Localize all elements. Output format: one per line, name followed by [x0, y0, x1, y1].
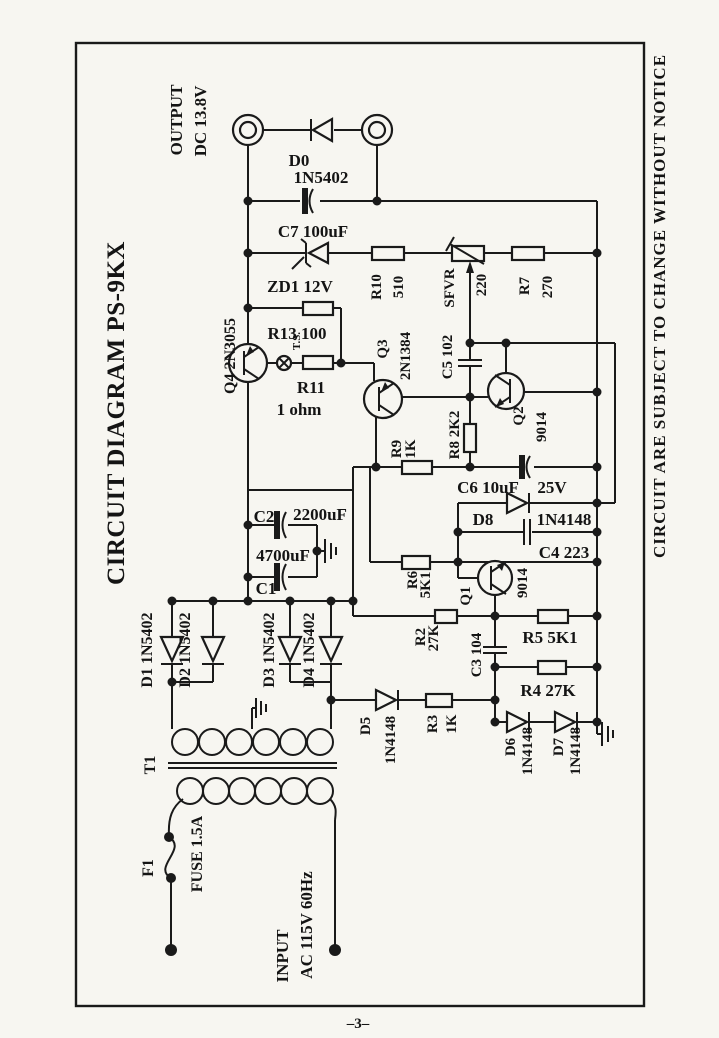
bridge-diode-d3: [279, 637, 301, 664]
label-q2-ref: Q2: [511, 406, 527, 425]
capacitor-c3: [483, 647, 507, 653]
trimmer-svr: [446, 237, 484, 273]
ground-filter: [325, 539, 336, 563]
capacitor-c4: [524, 519, 530, 545]
capacitor-c7: [302, 188, 313, 214]
resistor-r10: [372, 247, 404, 260]
label-r6-val: 5K1: [418, 572, 434, 599]
label-r10-ref: R10: [369, 274, 385, 300]
label-d5-val: 1N4148: [383, 716, 399, 764]
diode-d0: [311, 119, 332, 141]
label-c2-val: 2200uF: [293, 505, 347, 524]
resistor-r2: [435, 610, 457, 623]
transistor-q2: [488, 373, 524, 409]
label-r9-val: 1K: [403, 439, 419, 459]
label-c1-ref: C1: [256, 579, 277, 598]
label-c7: C7 100uF: [278, 222, 348, 241]
resistor-r4: [538, 661, 566, 674]
output-label-line2: DC 13.8V: [191, 85, 210, 157]
capacitor-c2: [274, 511, 286, 539]
resistor-r11: [303, 356, 333, 369]
input-terminal-left: [165, 944, 177, 956]
label-q1-val: 9014: [515, 568, 531, 599]
notice-text: CIRCUIT ARE SUBJECT TO CHANGE WITHOUT NO…: [650, 54, 669, 558]
transistor-q3: [364, 380, 402, 418]
label-c6-ref: C6 10uF: [457, 478, 519, 497]
label-d5-ref: D5: [358, 717, 374, 735]
label-zd1: ZD1 12V: [267, 277, 333, 296]
resistor-r9: [402, 461, 432, 474]
schematic-page: CIRCUIT DIAGRAM PS-9KX CIRCUIT ARE SUBJE…: [0, 0, 719, 1038]
resistor-r7: [512, 247, 544, 260]
label-f1: F1: [140, 859, 157, 877]
label-d0-val: 1N5402: [294, 168, 349, 187]
label-c5: C5 102: [440, 335, 456, 380]
output-terminal-positive: [233, 115, 263, 145]
label-d8-val: 1N4148: [537, 510, 592, 529]
resistor-r13: [303, 302, 333, 315]
label-ts: T.S.: [291, 332, 303, 350]
capacitor-c6: [519, 455, 530, 479]
label-svr-val: 220: [474, 274, 490, 297]
output-terminal-negative: [362, 115, 392, 145]
page-number: –3–: [346, 1016, 370, 1032]
label-q1-ref: Q1: [458, 586, 474, 605]
label-r5: R5 5K1: [522, 628, 577, 647]
transistor-q1: [478, 561, 512, 595]
label-r11-val: 1 ohm: [277, 400, 322, 419]
label-d3: D3 1N5402: [261, 612, 278, 687]
resistor-r5: [538, 610, 568, 623]
input-label-line2: AC 115V 60Hz: [297, 871, 316, 979]
label-q3-val: 2N1384: [398, 331, 414, 380]
label-c4: C4 223: [539, 543, 590, 562]
label-r11-ref: R11: [297, 378, 325, 397]
ground-center-tap: [256, 698, 266, 718]
label-q4: Q4 2N3055: [222, 318, 239, 394]
label-d4: D4 1N5402: [301, 612, 318, 687]
label-t1: T1: [142, 756, 159, 775]
label-d6-ref: D6: [503, 737, 519, 756]
label-q3-ref: Q3: [375, 339, 391, 358]
resistor-r6: [402, 556, 430, 569]
label-r3-val: 1K: [444, 714, 460, 734]
input-terminal-right: [329, 944, 341, 956]
label-c6-val: 25V: [537, 478, 567, 497]
thermal-switch-ts: [277, 356, 291, 370]
label-r10-val: 510: [391, 276, 407, 299]
label-d6-val: 1N4148: [520, 727, 536, 775]
bridge-diode-d4: [320, 637, 342, 664]
label-d7-val: 1N4148: [568, 727, 584, 775]
resistor-r8: [464, 424, 476, 452]
label-r4: R4 27K: [520, 681, 576, 700]
label-q2-val: 9014: [534, 412, 550, 443]
label-c1-val: 4700uF: [256, 546, 310, 565]
label-r3-ref: R3: [425, 715, 441, 733]
capacitor-c5: [458, 360, 482, 366]
label-r7-ref: R7: [517, 276, 533, 295]
transformer-t1: [172, 729, 333, 804]
ground-bottom: [602, 722, 613, 746]
bridge-diode-d2: [202, 637, 224, 664]
label-r8: R8 2K2: [447, 411, 463, 460]
label-c2-ref: C2: [254, 507, 275, 526]
label-d7-ref: D7: [551, 737, 567, 756]
diode-d5: [376, 690, 398, 710]
label-c3: C3 104: [469, 632, 485, 677]
label-d8-ref: D8: [473, 510, 494, 529]
label-r7-val: 270: [540, 276, 556, 299]
resistor-r3: [426, 694, 452, 707]
label-r2-val: 27K: [426, 624, 442, 651]
label-fuse: FUSE 1.5A: [189, 815, 206, 892]
label-d1: D1 1N5402: [139, 612, 156, 687]
page-title: CIRCUIT DIAGRAM PS-9KX: [103, 241, 130, 585]
output-label-line1: OUTPUT: [167, 84, 186, 156]
input-label-line1: INPUT: [273, 929, 292, 983]
label-d2: D2 1N5402: [177, 612, 194, 687]
label-svr-ref: SFVR: [442, 268, 458, 307]
